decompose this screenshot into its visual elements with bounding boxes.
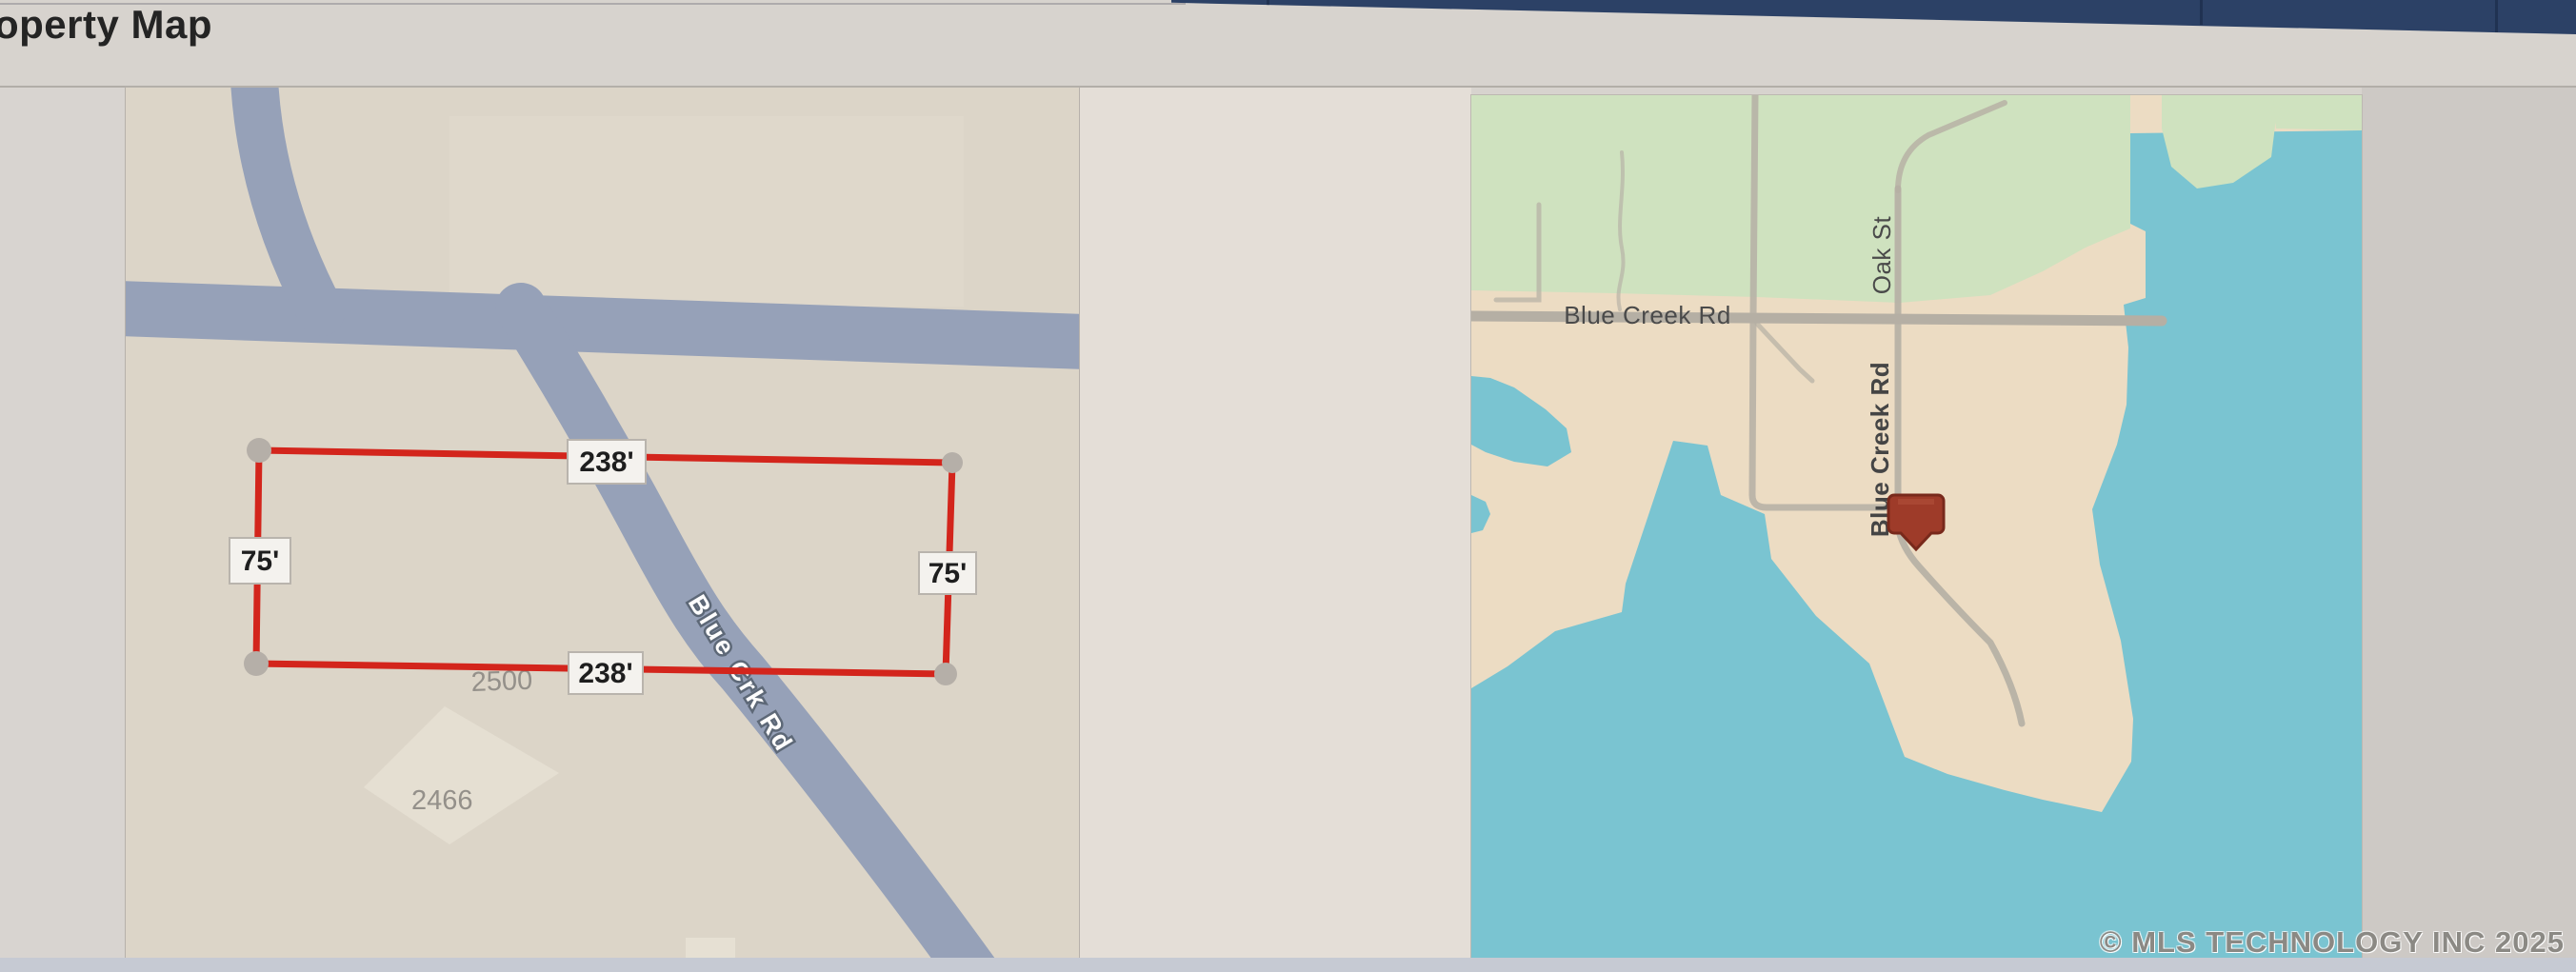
dimension-label-left: 75' xyxy=(230,538,290,584)
plat-light-area xyxy=(449,116,964,307)
vertex-dot xyxy=(244,651,269,676)
dimension-text-bottom: 238' xyxy=(578,658,632,689)
map-gap xyxy=(1079,88,1471,972)
window-divider-tick xyxy=(2200,0,2203,25)
road-label-oak-st: Oak St xyxy=(1867,215,1896,294)
road-horizontal xyxy=(126,308,1079,342)
green-area-band xyxy=(1471,95,2130,303)
page-title: operty Map xyxy=(0,2,212,48)
left-margin xyxy=(0,88,126,972)
plat-map-canvas[interactable]: 2500 2466 Blue Crk Rd 238' 75' 75' xyxy=(126,88,1079,972)
marker-highlight xyxy=(1898,499,1934,505)
dimension-label-right: 75' xyxy=(919,552,976,594)
dimension-label-bottom: 238' xyxy=(569,652,643,694)
location-map-canvas[interactable]: Blue Creek Rd Oak St Blue Creek Rd xyxy=(1471,95,2362,958)
vertex-dot xyxy=(934,663,957,685)
right-margin xyxy=(2362,88,2576,972)
vertex-dot xyxy=(942,452,963,473)
parcel-number-2466: 2466 xyxy=(411,785,473,816)
dimension-text-top: 238' xyxy=(579,446,633,478)
bottom-strip xyxy=(0,958,2576,972)
plat-map-panel[interactable]: 2500 2466 Blue Crk Rd 238' 75' 75' xyxy=(126,88,1079,972)
dimension-label-top: 238' xyxy=(568,440,646,484)
window-divider-tick xyxy=(2495,0,2498,32)
dimension-text-right: 75' xyxy=(929,558,968,589)
road-label-blue-creek-rd: Blue Creek Rd xyxy=(1564,301,1731,329)
copyright-watermark: © MLS TECHNOLOGY INC 2025 xyxy=(2100,925,2565,960)
dimension-text-left: 75' xyxy=(241,546,280,577)
vertex-dot xyxy=(247,438,271,463)
location-map-panel[interactable]: Blue Creek Rd Oak St Blue Creek Rd xyxy=(1471,95,2362,958)
green-area-corner xyxy=(2273,95,2362,130)
